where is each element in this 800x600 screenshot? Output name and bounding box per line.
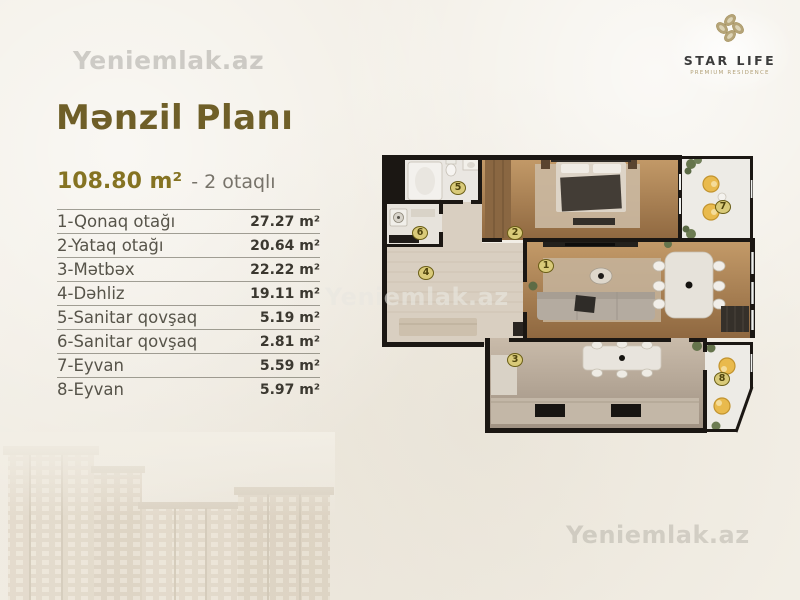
watermark-bottom-right: Yeniemlak.az: [566, 521, 750, 549]
logo-tagline: PREMIUM RESIDENCE: [670, 70, 790, 76]
apartment-summary: 108.80 m² - 2 otaqlı: [57, 169, 276, 194]
watermark-top-left: Yeniemlak.az: [73, 46, 264, 75]
room-marker-4: 4: [418, 266, 434, 280]
balcony8-floor: [705, 342, 753, 431]
room-label: 3-Mətbəx: [57, 260, 135, 279]
room-area: 22.22 m²: [250, 262, 320, 278]
room-area: 5.19 m²: [260, 310, 320, 326]
room-marker-5: 5: [450, 181, 466, 195]
floor-plan: [375, 140, 760, 440]
balcony7-floor: [682, 158, 753, 240]
room-label: 5-Sanitar qovşaq: [57, 308, 197, 327]
room-row: 8-Eyvan 5.97 m²: [57, 377, 320, 401]
logo-name: STAR LIFE: [670, 53, 790, 68]
room-area: 2.81 m²: [260, 334, 320, 350]
rooms-count: - 2 otaqlı: [191, 171, 275, 193]
room-marker-1: 1: [538, 259, 554, 273]
room-row: 3-Mətbəx 22.22 m²: [57, 257, 320, 281]
room-label: 4-Dəhliz: [57, 284, 125, 303]
room-marker-8: 8: [714, 372, 730, 386]
room-marker-3: 3: [507, 353, 523, 367]
room-marker-7: 7: [715, 200, 731, 214]
page-title: Mənzil Planı: [56, 98, 293, 138]
star-life-logo: STAR LIFE PREMIUM RESIDENCE: [670, 8, 790, 94]
room-area: 5.97 m²: [260, 382, 320, 398]
room-row: 1-Qonaq otağı 27.27 m²: [57, 209, 320, 233]
room-label: 6-Sanitar qovşaq: [57, 332, 197, 351]
room-row: 4-Dəhliz 19.11 m²: [57, 281, 320, 305]
room-area: 20.64 m²: [250, 238, 320, 254]
flyer-page: Yeniemlak.az Yeniemlak.az Yeniemlak.az S…: [0, 0, 800, 600]
total-area: 108.80 m²: [57, 169, 182, 194]
room-row: 6-Sanitar qovşaq 2.81 m²: [57, 329, 320, 353]
room-row: 5-Sanitar qovşaq 5.19 m²: [57, 305, 320, 329]
buildings-illustration: [0, 432, 335, 600]
room-area: 27.27 m²: [250, 214, 320, 230]
room-table: 1-Qonaq otağı 27.27 m² 2-Yataq otağı 20.…: [57, 209, 320, 401]
room-label: 8-Eyvan: [57, 380, 124, 399]
logo-ornament-icon: [707, 8, 753, 48]
room-label: 7-Eyvan: [57, 356, 124, 375]
room-row: 7-Eyvan 5.59 m²: [57, 353, 320, 377]
room-marker-6: 6: [412, 226, 428, 240]
room-label: 1-Qonaq otağı: [57, 212, 175, 231]
room-row: 2-Yataq otağı 20.64 m²: [57, 233, 320, 257]
room-label: 2-Yataq otağı: [57, 236, 163, 255]
room-area: 19.11 m²: [250, 286, 320, 302]
room-area: 5.59 m²: [260, 358, 320, 374]
room-marker-2: 2: [507, 226, 523, 240]
